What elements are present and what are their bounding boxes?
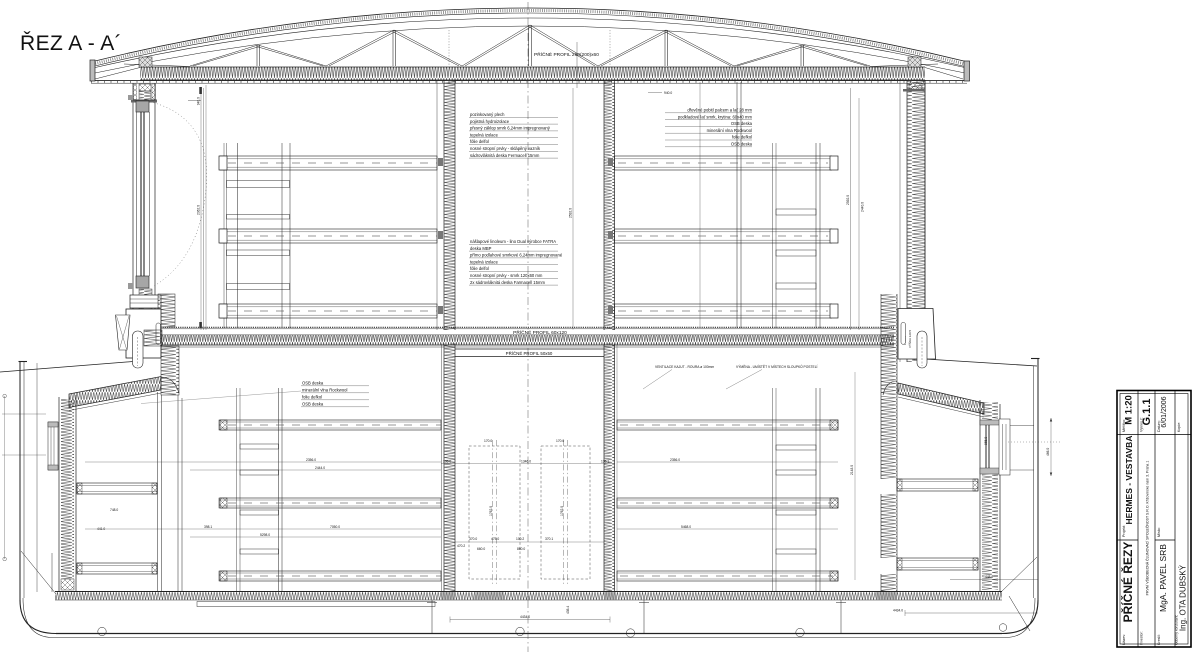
svg-text:VÝŠKA 120.5: VÝŠKA 120.5 — [907, 329, 912, 348]
svg-text:136.1: 136.1 — [601, 460, 609, 464]
svg-text:sádrovláknitá deska Fermacell: sádrovláknitá deska Fermacell 15mm — [470, 153, 540, 158]
svg-text:minerální vlna Rockwool: minerální vlna Rockwool — [302, 388, 347, 393]
svg-text:2362.0: 2362.0 — [197, 205, 201, 215]
svg-text:4434.0: 4434.0 — [893, 609, 903, 613]
svg-text:5298.0: 5298.0 — [260, 533, 270, 537]
svg-text:2356.0: 2356.0 — [306, 458, 316, 462]
svg-text:OSB deska: OSB deska — [731, 142, 753, 147]
svg-text:M 1:20: M 1:20 — [1124, 395, 1135, 425]
svg-text:folie defkol: folie defkol — [732, 135, 752, 140]
svg-text:OSB deska: OSB deska — [302, 402, 324, 407]
svg-text:přesný záklop smrk 6,24mm impr: přesný záklop smrk 6,24mm impregnovaný — [470, 126, 551, 131]
svg-text:6/01/2006: 6/01/2006 — [1161, 396, 1168, 427]
svg-text:2440.0: 2440.0 — [861, 202, 865, 212]
svg-text:VENTILACE KAJUT - ROURA ø 100m: VENTILACE KAJUT - ROURA ø 100mm — [655, 365, 714, 369]
svg-text:2356.0: 2356.0 — [670, 458, 680, 462]
svg-text:fólie delfol: fólie delfol — [470, 139, 489, 144]
svg-text:370.1: 370.1 — [545, 537, 553, 541]
svg-text:136.0: 136.0 — [443, 460, 451, 464]
svg-text:2148.0: 2148.0 — [850, 465, 854, 475]
svg-text:nosné stropní prvky - sklápěný: nosné stropní prvky - sklápěný vazník — [470, 146, 541, 151]
svg-text:860.0: 860.0 — [517, 547, 525, 551]
svg-text:ŘEZ A - A´: ŘEZ A - A´ — [20, 32, 122, 55]
svg-text:2x sádrovláknitá deska Farmace: 2x sádrovláknitá deska Farmacell 15mm — [470, 280, 545, 285]
svg-text:1346.0: 1346.0 — [521, 460, 531, 464]
svg-text:PŘÍČNÉ PROFIL 50x50: PŘÍČNÉ PROFIL 50x50 — [506, 351, 553, 356]
svg-text:1762.0: 1762.0 — [489, 506, 493, 516]
svg-text:PŘÍČNÉ ŘEZY: PŘÍČNÉ ŘEZY — [1120, 542, 1135, 623]
svg-text:2592.0: 2592.0 — [846, 195, 850, 205]
svg-text:Investor:: Investor: — [1140, 631, 1144, 645]
svg-text:folie defkol: folie defkol — [302, 395, 322, 400]
svg-text:MgA. PAVEL SRB: MgA. PAVEL SRB — [1158, 544, 1168, 612]
svg-text:370.0: 370.0 — [469, 537, 477, 541]
svg-text:660.0: 660.0 — [477, 547, 485, 551]
svg-text:Název:: Název: — [1122, 634, 1126, 645]
svg-text:PRVNÍ VŠEOBECNÁ ČLUNOVACÍ SPOL: PRVNÍ VŠEOBECNÁ ČLUNOVACÍ SPOLEČNOST S.R… — [1145, 461, 1150, 596]
svg-text:pozinkovaný plech: pozinkovaný plech — [470, 112, 505, 117]
svg-text:470.2: 470.2 — [457, 544, 465, 548]
svg-text:Kreslil:: Kreslil: — [1157, 634, 1161, 645]
svg-text:170.0: 170.0 — [484, 439, 492, 443]
svg-text:408.4: 408.4 — [566, 606, 570, 614]
svg-text:2592.0: 2592.0 — [569, 208, 573, 218]
svg-text:475.0: 475.0 — [491, 537, 499, 541]
svg-text:deska MBP: deska MBP — [470, 246, 492, 251]
svg-text:1762.0: 1762.0 — [560, 506, 564, 516]
svg-text:dřevěné pobití palcem a lať 28: dřevěné pobití palcem a lať 28 mm — [687, 108, 752, 113]
svg-text:398.1: 398.1 — [204, 525, 212, 529]
svg-text:Projekt:: Projekt: — [1122, 525, 1126, 537]
svg-text:OSB deska: OSB deska — [731, 121, 753, 126]
svg-text:fólie delfol: fólie delfol — [470, 266, 489, 271]
svg-text:748.0: 748.0 — [110, 508, 118, 512]
svg-text:pojistná hydroizolace: pojistná hydroizolace — [470, 119, 510, 124]
svg-text:G.1.1: G.1.1 — [1141, 399, 1153, 426]
svg-text:minerální vlna Rockwool: minerální vlna Rockwool — [707, 128, 752, 133]
svg-text:Kopie:: Kopie: — [1177, 422, 1181, 432]
svg-text:Ing. OTA DUBSKÝ: Ing. OTA DUBSKÝ — [1179, 564, 1188, 631]
svg-text:940.0: 940.0 — [197, 97, 201, 105]
svg-text:Místo:: Místo: — [1157, 527, 1161, 537]
svg-text:podkladové lať smrk, krytina:: podkladové lať smrk, krytina: 60x40 mm — [678, 114, 753, 119]
svg-text:2444.0: 2444.0 — [315, 466, 325, 470]
svg-text:VÝMĚNA - UMÍSTĚT V MÍSTECH SLO: VÝMĚNA - UMÍSTĚT V MÍSTECH SLOUPKŮ POSTE… — [736, 364, 818, 369]
svg-text:4434.0: 4434.0 — [520, 615, 530, 619]
svg-text:940.0: 940.0 — [664, 91, 672, 95]
svg-text:tepelná izolace: tepelná izolace — [470, 132, 499, 137]
svg-text:nášlapové linoleum - lino Dual: nášlapové linoleum - lino Dual výrobce F… — [470, 239, 556, 244]
svg-text:170.0: 170.0 — [556, 439, 564, 443]
svg-text:tepelná izolace: tepelná izolace — [470, 259, 499, 264]
svg-text:448.0: 448.0 — [985, 575, 993, 579]
svg-text:7050.0: 7050.0 — [330, 525, 340, 529]
svg-text:100.2: 100.2 — [516, 537, 524, 541]
svg-text:OSB deska: OSB deska — [302, 381, 324, 386]
svg-text:466.0: 466.0 — [1046, 448, 1050, 456]
svg-text:HERMES - VESTAVBA: HERMES - VESTAVBA — [1124, 436, 1134, 525]
svg-text:přímo podlahové smrkové 6,24mm: přímo podlahové smrkové 6,24mm impregnov… — [470, 253, 563, 258]
svg-text:955.0: 955.0 — [984, 437, 988, 445]
svg-text:5468.0: 5468.0 — [681, 525, 691, 529]
svg-text:nosné stropní prvky - smrk 120: nosné stropní prvky - smrk 120x60 mm — [470, 273, 543, 278]
